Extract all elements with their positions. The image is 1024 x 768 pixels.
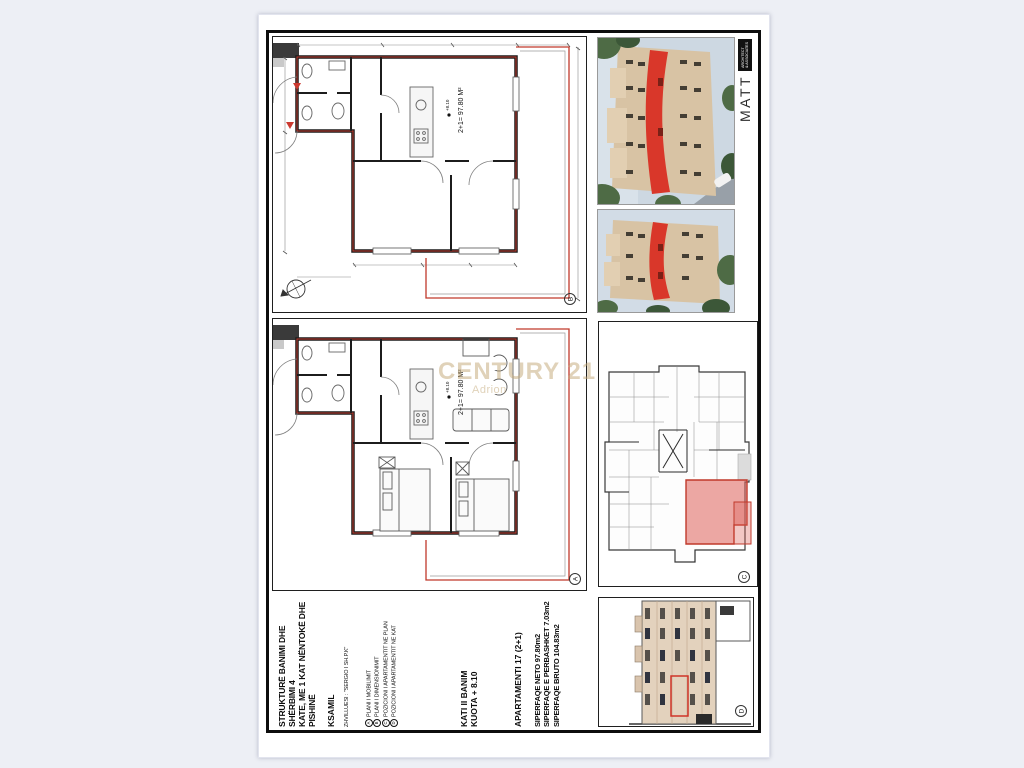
building-rendering-1: [597, 37, 735, 205]
site-plan-drawing: C: [599, 322, 756, 585]
panel-furniture-plan: +8.10 2+1= 97.80 M² A: [272, 318, 587, 591]
legend-item: BPLANI I DIMENSIONIMIT: [373, 590, 381, 727]
floor-label: KATI II BANIM: [459, 590, 470, 727]
apartment-label: APARTAMENTI 17 (2+1): [513, 590, 523, 727]
legend: APLANI I MOBILIMIT BPLANI I DIMENSIONIMI…: [365, 590, 399, 727]
area-label: 2+1= 97.80 M²: [458, 369, 465, 415]
panel-position-in-plan: C: [598, 321, 758, 587]
gray-annex-box: [738, 454, 751, 480]
panel-marker-d: D: [738, 708, 745, 713]
level-label: +8.10: [445, 381, 450, 393]
level-label: +8.10: [445, 99, 450, 111]
dimension-plan-drawing: +8.10 2+1= 97.80 M² B: [273, 37, 585, 311]
elevation-label: KUOTA + 8.10: [469, 590, 480, 727]
building-rendering-2: [597, 209, 735, 313]
balconies: [635, 616, 642, 692]
area-common: SIPERFAQE E PERBASHKET 7.03m2: [542, 590, 552, 727]
area-gross: SIPERFAQE BRUTO 104.83m2: [552, 590, 562, 727]
title-block: STRUKTURË BANIMI DHE SHËRBIMI 4 KATE, ME…: [277, 590, 577, 727]
elevation-drawing: D: [599, 598, 752, 725]
project-title: STRUKTURË BANIMI DHE SHËRBIMI 4 KATE, ME…: [277, 590, 317, 727]
apartment-walls: [297, 57, 516, 251]
logo-badge: ARCHITECT & ASSOCIATES: [738, 39, 753, 71]
legend-item: DPOZICIONI I APARTAMENTIT NE KAT: [390, 590, 398, 727]
panel-marker-a: A: [572, 576, 579, 581]
floor-info: KATI II BANIM KUOTA + 8.10: [459, 590, 480, 727]
project-city: KSAMIL: [326, 590, 336, 727]
panel-marker-c: C: [741, 574, 748, 579]
panel-marker-b: B: [567, 297, 574, 301]
facade: [642, 601, 716, 724]
panel-dimension-plan: +8.10 2+1= 97.80 M² B: [272, 36, 587, 313]
legend-marker-a: A: [365, 719, 373, 727]
north-compass-icon: [281, 280, 311, 298]
legend-marker-d: D: [390, 719, 398, 727]
neighbor-wall-stub: [273, 43, 299, 58]
matt-architect-logo: MATT ARCHITECT & ASSOCIATES: [733, 36, 757, 122]
panel-position-on-facade: D: [598, 597, 754, 727]
project-developer: ZHVILLUESI : "SERGIO I SH.P.K": [344, 590, 350, 727]
legend-marker-c: C: [382, 719, 390, 727]
entry-marker: [286, 122, 294, 129]
base-block: [696, 714, 712, 724]
logo-wordmark: MATT: [737, 75, 753, 122]
legend-item: APLANI I MOBILIMIT: [365, 590, 373, 727]
area-net: SIPERFAQE NETO 97.80m2: [533, 590, 543, 727]
furniture-plan-drawing: +8.10 2+1= 97.80 M² A: [273, 319, 585, 589]
building-rendering-1-art: [598, 38, 734, 204]
legend-marker-b: B: [373, 719, 381, 727]
building-rendering-2-art: [598, 210, 734, 312]
area-summary: SIPERFAQE NETO 97.80m2 SIPERFAQE E PERBA…: [533, 590, 562, 727]
legend-item: CPOZICIONI I APARTAMENTIT NE PLAN: [382, 590, 390, 727]
architectural-sheet-image: +8.10 2+1= 97.80 M² B: [0, 0, 1024, 768]
area-label: 2+1= 97.80 M²: [458, 87, 465, 133]
neighbor-wall-stub: [273, 325, 299, 340]
highlighted-balcony: [734, 502, 751, 544]
